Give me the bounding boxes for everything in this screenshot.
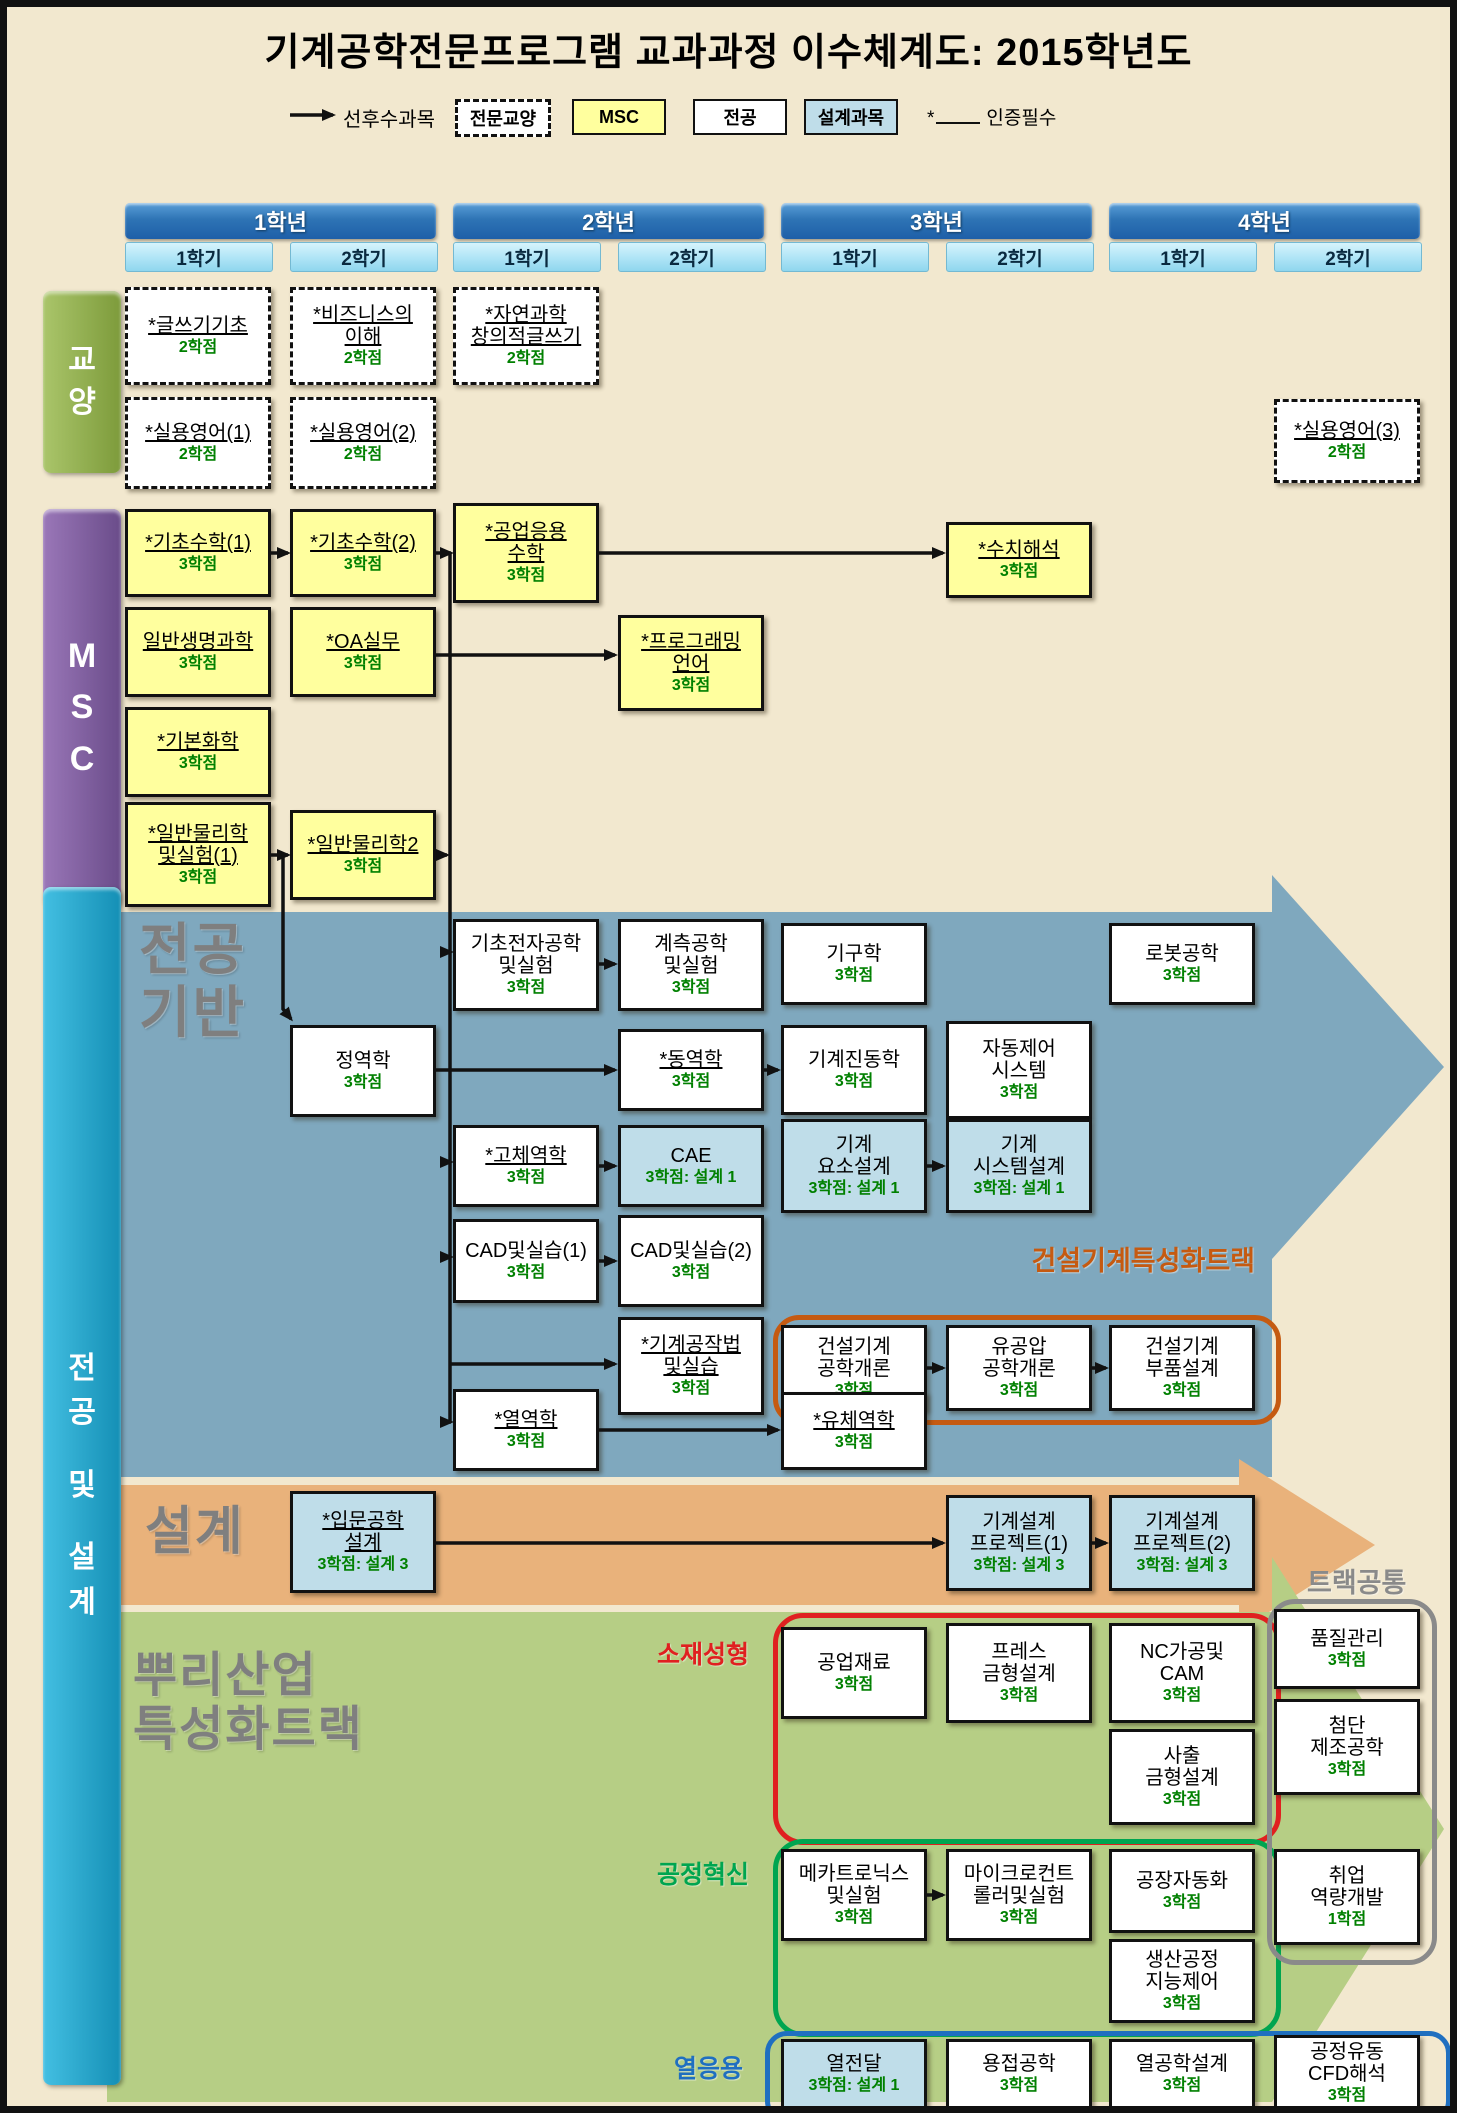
course-credit: 3학점 <box>179 655 217 673</box>
course-name-line: 공업재료 <box>817 1652 891 1674</box>
course-name-line: 건설기계 <box>1145 1336 1219 1358</box>
course-biology: 일반생명과학3학점 <box>125 607 271 697</box>
course-name-line: CAE <box>670 1145 711 1167</box>
thermal-label: 열응용 <box>674 2049 743 2085</box>
year-header-1: 1학년 <box>125 203 436 239</box>
course-credit: 3학점 <box>672 1073 710 1091</box>
course-math2: *기초수학(2)3학점 <box>290 509 436 597</box>
course-credit: 3학점: 설계 3 <box>974 1557 1065 1575</box>
course-credit: 3학점 <box>1328 2087 1366 2105</box>
course-credit: 3학점 <box>344 655 382 673</box>
semester-cell-3-1: 1학기 <box>781 242 929 272</box>
course-credit: 3학점: 설계 3 <box>1137 1557 1228 1575</box>
section-bar-char: S <box>71 688 94 727</box>
semester-cell-2-1: 1학기 <box>453 242 601 272</box>
course-career: 취업역량개발1학점 <box>1274 1849 1420 1945</box>
section-bar-char: 교 <box>68 344 96 379</box>
course-name-line: 역량개발 <box>1310 1887 1384 1909</box>
semester-cell-2-2: 2학기 <box>618 242 766 272</box>
course-name-line: *수치해석 <box>978 539 1059 561</box>
course-name-line: *실용영어(2) <box>310 422 416 444</box>
course-factory-automation: 공장자동화3학점 <box>1109 1849 1255 1933</box>
course-name-line: 지능제어 <box>1145 1971 1219 1993</box>
course-welding: 용접공학3학점 <box>946 2039 1092 2109</box>
course-name-line: 금형설계 <box>982 1663 1056 1685</box>
course-vibration: 기계진동학3학점 <box>781 1025 927 1115</box>
course-credit: 3학점 <box>1163 2077 1201 2095</box>
course-credit: 3학점 <box>507 979 545 997</box>
course-name-line: *유체역학 <box>813 1410 894 1432</box>
course-name-line: 정역학 <box>335 1050 390 1072</box>
course-english1: *실용영어(1)2학점 <box>125 397 271 489</box>
course-numerical: *수치해석3학점 <box>946 522 1092 598</box>
course-name-line: 설계 <box>345 1532 382 1554</box>
course-construction-parts: 건설기계부품설계3학점 <box>1109 1325 1255 1411</box>
course-credit: 3학점 <box>344 858 382 876</box>
section-bar-gyoyang: 교양 <box>43 291 121 473</box>
course-name-line: 기계진동학 <box>808 1049 900 1071</box>
course-credit: 3학점 <box>672 979 710 997</box>
course-name-line: 공정유동 <box>1310 2041 1384 2063</box>
course-mechanism: 기구학3학점 <box>781 923 927 1005</box>
course-name-line: 계측공학 <box>654 933 728 955</box>
course-credit: 3학점 <box>1163 1382 1201 1400</box>
course-credit: 3학점 <box>344 556 382 574</box>
course-credit: 3학점 <box>1163 1687 1201 1705</box>
band-label-line: 전공 <box>139 919 246 982</box>
course-credit: 2학점 <box>179 339 217 357</box>
course-thermal-design: 열공학설계3학점 <box>1109 2039 1255 2109</box>
course-nc-cam: NC가공및CAM3학점 <box>1109 1623 1255 1723</box>
course-name-line: 자동제어 <box>982 1038 1056 1060</box>
course-materials: 공업재료3학점 <box>781 1627 927 1719</box>
section-bar-char: 전 <box>68 1352 96 1387</box>
course-name-line: 프레스 <box>991 1641 1046 1663</box>
course-physics2: *일반물리학23학점 <box>290 810 436 900</box>
course-name-line: 메카트로닉스 <box>799 1863 909 1885</box>
course-name-line: 및실험 <box>663 955 718 977</box>
section-bar-char: 설 <box>68 1541 96 1576</box>
course-cad2: CAD및실습(2)3학점 <box>618 1215 764 1307</box>
section-bar-char: 양 <box>68 386 96 421</box>
band-label-major-base: 전공기반 <box>139 919 246 1044</box>
course-name-line: *기초수학(1) <box>145 532 251 554</box>
course-intro-design: *입문공학설계3학점: 설계 3 <box>290 1491 436 1593</box>
course-credit: 3학점 <box>1000 1084 1038 1102</box>
course-robotics: 로봇공학3학점 <box>1109 923 1255 1005</box>
course-chemistry: *기본화학3학점 <box>125 707 271 797</box>
course-credit: 2학점 <box>507 350 545 368</box>
material-forming-label: 소재성형 <box>657 1635 749 1671</box>
course-oa: *OA실무3학점 <box>290 607 436 697</box>
course-name-line: *공업응용 <box>485 521 566 543</box>
section-bar-char: 계 <box>68 1586 96 1621</box>
course-name-line: *글쓰기기초 <box>148 315 248 337</box>
course-credit: 3학점 <box>1000 1382 1038 1400</box>
course-hydraulics: 유공압공학개론3학점 <box>946 1325 1092 1411</box>
required-label: 인증필수 <box>986 108 1056 129</box>
course-name-line: *비즈니스의 <box>313 304 413 326</box>
course-credit: 3학점 <box>835 1434 873 1452</box>
course-credit: 3학점 <box>179 869 217 887</box>
course-name-line: 시스템 <box>991 1060 1046 1082</box>
course-name-line: 기구학 <box>826 943 881 965</box>
course-name-line: *동역학 <box>660 1049 723 1071</box>
course-name-line: 이해 <box>345 326 382 348</box>
course-name-line: 용접공학 <box>982 2053 1056 2075</box>
legend-item-design: 설계과목 <box>804 99 898 135</box>
course-name-line: *실용영어(3) <box>1294 420 1400 442</box>
course-credit: 3학점 <box>344 1074 382 1092</box>
course-name-line: 로봇공학 <box>1145 943 1219 965</box>
course-name-line: *일반물리학2 <box>308 834 419 856</box>
course-math1: *기초수학(1)3학점 <box>125 509 271 597</box>
course-solid-mech: *고체역학3학점 <box>453 1125 599 1207</box>
course-credit: 3학점 <box>672 677 710 695</box>
course-writing: *글쓰기기초2학점 <box>125 287 271 385</box>
course-statics: 정역학3학점 <box>290 1025 436 1117</box>
course-name-line: 열전달 <box>826 2053 881 2075</box>
course-name-line: 공장자동화 <box>1136 1870 1228 1892</box>
legend-arrow-label: 선후수과목 <box>343 103 435 132</box>
band-label-root-track: 뿌리산업특성화트랙 <box>133 1649 364 1757</box>
semester-cell-4-2: 2학기 <box>1274 242 1422 272</box>
course-name-line: 금형설계 <box>1145 1767 1219 1789</box>
course-name-line: 기계 <box>1001 1134 1038 1156</box>
course-name-line: 품질관리 <box>1310 1628 1384 1650</box>
legend-item-dashed: 전문교양 <box>455 99 551 137</box>
course-name-line: *기초수학(2) <box>310 532 416 554</box>
course-name-line: 시스템설계 <box>973 1156 1065 1178</box>
course-credit: 3학점 <box>672 1380 710 1398</box>
course-name-line: 첨단 <box>1329 1715 1366 1737</box>
course-name-line: 기계설계 <box>1145 1511 1219 1533</box>
course-name-line: *OA실무 <box>326 631 399 653</box>
legend-required-note: *인증필수 <box>927 103 1056 130</box>
course-credit: 3학점 <box>179 755 217 773</box>
course-credit: 3학점 <box>1000 1687 1038 1705</box>
section-bar-major-design: 전공및설계 <box>43 887 121 2085</box>
year-header-4: 4학년 <box>1109 203 1420 239</box>
course-name-line: 및실험(1) <box>158 845 238 867</box>
course-machining: *기계공작법및실습3학점 <box>618 1317 764 1415</box>
course-credit: 2학점 <box>1328 444 1366 462</box>
course-credit: 3학점 <box>1000 2077 1038 2095</box>
course-credit: 3학점 <box>835 1909 873 1927</box>
course-name-line: 기계 <box>836 1134 873 1156</box>
course-name-line: 창의적글쓰기 <box>471 326 581 348</box>
course-english2: *실용영어(2)2학점 <box>290 397 436 489</box>
course-credit: 3학점 <box>1000 563 1038 581</box>
course-microcontroller: 마이크로컨트롤러및실험3학점 <box>946 1849 1092 1941</box>
course-english3: *실용영어(3)2학점 <box>1274 399 1420 483</box>
course-cad1: CAD및실습(1)3학점 <box>453 1219 599 1303</box>
course-physics1: *일반물리학및실험(1)3학점 <box>125 802 271 907</box>
course-credit: 3학점 <box>507 1169 545 1187</box>
course-credit: 3학점: 설계 1 <box>974 1180 1065 1198</box>
course-name-line: 기초전자공학 <box>471 933 581 955</box>
course-credit: 3학점 <box>179 556 217 574</box>
section-bar-char: 공 <box>68 1396 96 1431</box>
course-machine-elements: 기계요소설계3학점: 설계 1 <box>781 1119 927 1213</box>
course-name-line: 부품설계 <box>1145 1358 1219 1380</box>
legend-item-white: 전공 <box>693 99 787 135</box>
course-name-line: 유공압 <box>991 1336 1046 1358</box>
course-thermodynamics: *열역학3학점 <box>453 1389 599 1471</box>
process-innovation-label: 공정혁신 <box>657 1855 749 1891</box>
course-name-line: 생산공정 <box>1145 1949 1219 1971</box>
course-injection-die: 사출금형설계3학점 <box>1109 1729 1255 1825</box>
curriculum-flowchart: 기계공학전문프로그램 교과과정 이수체계도: 2015학년도 선후수과목전문교양… <box>0 0 1457 2113</box>
course-name-line: 제조공학 <box>1310 1737 1384 1759</box>
course-name-line: 프로젝트(1) <box>970 1533 1068 1555</box>
course-credit: 3학점 <box>1163 1791 1201 1809</box>
course-name-line: 수학 <box>508 543 545 565</box>
section-bar-char: 및 <box>68 1469 96 1504</box>
band-label-line: 기반 <box>139 982 246 1045</box>
course-eng-math: *공업응용수학3학점 <box>453 503 599 603</box>
course-name-line: 사출 <box>1164 1745 1201 1767</box>
course-mechatronics: 메카트로닉스및실험3학점 <box>781 1849 927 1941</box>
semester-cell-1-2: 2학기 <box>290 242 438 272</box>
course-programming: *프로그래밍언어3학점 <box>618 615 764 711</box>
course-name-line: *자연과학 <box>485 304 566 326</box>
course-name-line: *열역학 <box>495 1409 558 1431</box>
course-design-project2: 기계설계프로젝트(2)3학점: 설계 3 <box>1109 1495 1255 1591</box>
course-credit: 3학점 <box>507 567 545 585</box>
track-common-label: 트랙공통 <box>1307 1561 1406 1600</box>
band-label-line: 특성화트랙 <box>133 1703 364 1757</box>
course-name-line: *고체역학 <box>485 1145 566 1167</box>
course-credit: 3학점: 설계 1 <box>646 1169 737 1187</box>
course-credit: 3학점 <box>1163 1894 1201 1912</box>
course-measurement: 계측공학및실험3학점 <box>618 919 764 1011</box>
course-name-line: 열공학설계 <box>1136 2053 1228 2075</box>
required-asterisk: * <box>927 108 934 129</box>
legend-item-msc: MSC <box>572 99 666 135</box>
course-machine-system: 기계시스템설계3학점: 설계 1 <box>946 1119 1092 1213</box>
course-press-die: 프레스금형설계3학점 <box>946 1623 1092 1723</box>
course-credit: 3학점 <box>1163 1995 1201 2013</box>
course-name-line: *실용영어(1) <box>145 422 251 444</box>
course-name-line: 공학개론 <box>817 1358 891 1380</box>
course-name-line: 언어 <box>673 653 710 675</box>
course-credit: 3학점 <box>1000 1909 1038 1927</box>
course-name-line: *입문공학 <box>322 1510 403 1532</box>
course-name-line: 프로젝트(2) <box>1133 1533 1231 1555</box>
course-cfd: 공정유동CFD해석3학점 <box>1274 2035 1420 2111</box>
course-name-line: 기계설계 <box>982 1511 1056 1533</box>
course-credit: 3학점 <box>835 1676 873 1694</box>
course-name-line: *기계공작법 <box>641 1334 741 1356</box>
course-credit: 3학점: 설계 1 <box>809 1180 900 1198</box>
course-natsci-writing: *자연과학창의적글쓰기2학점 <box>453 287 599 385</box>
semester-cell-1-1: 1학기 <box>125 242 273 272</box>
course-credit: 3학점 <box>835 967 873 985</box>
course-name-line: 및실습 <box>663 1356 718 1378</box>
course-credit: 3학점 <box>1328 1652 1366 1670</box>
course-credit: 3학점 <box>507 1433 545 1451</box>
year-header-2: 2학년 <box>453 203 764 239</box>
section-bar-char: M <box>68 637 96 676</box>
course-credit: 2학점 <box>344 350 382 368</box>
course-electronics: 기초전자공학및실험3학점 <box>453 919 599 1011</box>
course-name-line: 및실험 <box>826 1885 881 1907</box>
band-label-design: 설계 <box>145 1503 245 1561</box>
year-header-3: 3학년 <box>781 203 1092 239</box>
required-underline <box>936 108 980 124</box>
course-business: *비즈니스의이해2학점 <box>290 287 436 385</box>
course-credit: 2학점 <box>179 446 217 464</box>
course-adv-manufacturing: 첨단제조공학3학점 <box>1274 1699 1420 1795</box>
course-name-line: 및실험 <box>498 955 553 977</box>
course-fluid-mech: *유체역학3학점 <box>781 1392 927 1470</box>
course-design-project1: 기계설계프로젝트(1)3학점: 설계 3 <box>946 1495 1092 1591</box>
course-credit: 3학점 <box>835 1073 873 1091</box>
course-credit: 3학점: 설계 3 <box>318 1556 409 1574</box>
course-dynamics: *동역학3학점 <box>618 1029 764 1111</box>
semester-cell-3-2: 2학기 <box>946 242 1094 272</box>
course-credit: 2학점 <box>344 446 382 464</box>
section-bar-char: C <box>70 740 95 779</box>
course-name-line: 마이크로컨트 <box>964 1863 1074 1885</box>
course-name-line: NC가공및 <box>1140 1641 1224 1663</box>
course-name-line: CAM <box>1160 1663 1204 1685</box>
course-name-line: CFD해석 <box>1308 2063 1386 2085</box>
band-label-line: 설계 <box>145 1503 245 1561</box>
course-name-line: 공학개론 <box>982 1358 1056 1380</box>
course-name-line: *일반물리학 <box>148 823 248 845</box>
course-name-line: CAD및실습(2) <box>630 1240 752 1262</box>
course-credit: 1학점 <box>1328 1911 1366 1929</box>
semester-cell-4-1: 1학기 <box>1109 242 1257 272</box>
band-label-line: 뿌리산업 <box>133 1649 364 1703</box>
course-name-line: 롤러및실험 <box>973 1885 1065 1907</box>
course-name-line: *프로그래밍 <box>641 631 741 653</box>
course-auto-control: 자동제어시스템3학점 <box>946 1021 1092 1119</box>
course-cae: CAE3학점: 설계 1 <box>618 1125 764 1207</box>
section-bar-msc: MSC <box>43 509 121 907</box>
course-credit: 3학점 <box>1163 967 1201 985</box>
course-name-line: 요소설계 <box>817 1156 891 1178</box>
course-heat-transfer: 열전달3학점: 설계 1 <box>781 2039 927 2109</box>
course-name-line: 취업 <box>1329 1865 1366 1887</box>
course-credit: 3학점: 설계 1 <box>809 2077 900 2095</box>
course-name-line: *기본화학 <box>157 731 238 753</box>
course-credit: 3학점 <box>672 1264 710 1282</box>
construction-track-label: 건설기계특성화트랙 <box>1031 1239 1255 1278</box>
course-quality: 품질관리3학점 <box>1274 1609 1420 1689</box>
course-production-control: 생산공정지능제어3학점 <box>1109 1939 1255 2023</box>
course-credit: 3학점 <box>507 1264 545 1282</box>
page-title: 기계공학전문프로그램 교과과정 이수체계도: 2015학년도 <box>7 21 1450 76</box>
course-name-line: 일반생명과학 <box>143 631 253 653</box>
course-name-line: CAD및실습(1) <box>465 1240 587 1262</box>
course-credit: 3학점 <box>1328 1761 1366 1779</box>
course-name-line: 건설기계 <box>817 1336 891 1358</box>
